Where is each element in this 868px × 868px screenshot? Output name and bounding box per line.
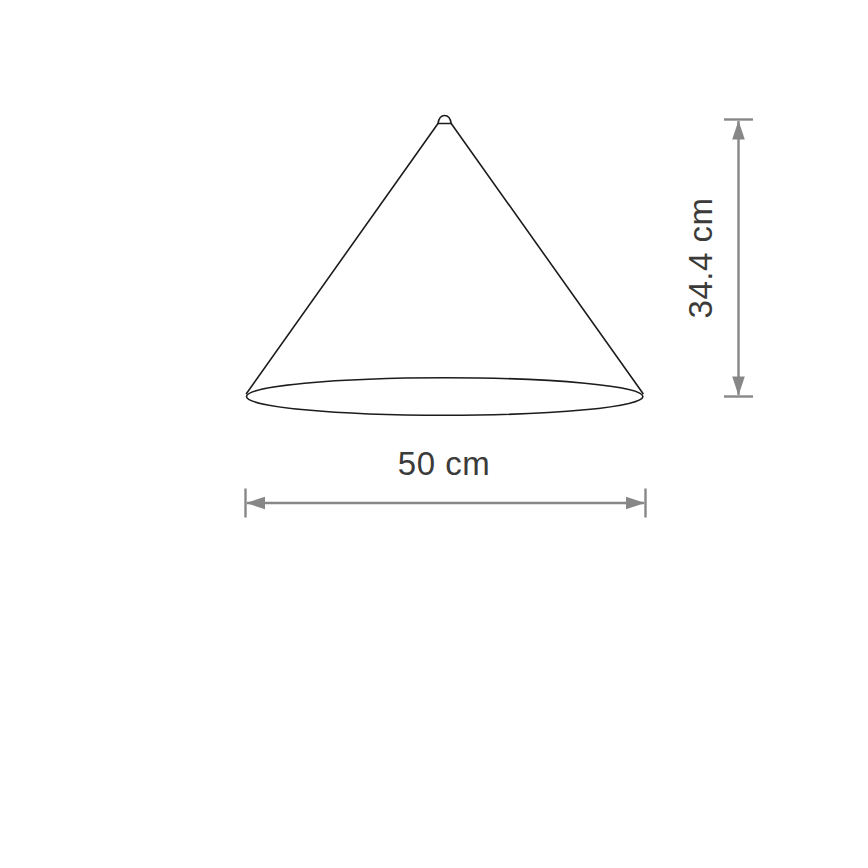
lampshade-dimension-diagram: 34.4 cm 50 cm — [0, 0, 868, 868]
diagram-canvas: 34.4 cm 50 cm — [0, 0, 868, 868]
cone-shade-outline — [247, 115, 644, 415]
width-arrow-left-icon — [246, 497, 265, 510]
width-dimension: 50 cm — [246, 445, 646, 518]
shade-left-edge — [247, 124, 439, 394]
width-arrow-right-icon — [626, 497, 645, 510]
height-dimension-label: 34.4 cm — [682, 198, 719, 319]
height-dimension: 34.4 cm — [682, 120, 754, 397]
width-dimension-label: 50 cm — [398, 445, 490, 482]
shade-top-cap — [438, 115, 451, 123]
shade-bottom-rim — [247, 378, 643, 416]
shade-right-edge — [451, 124, 643, 394]
height-arrow-up-icon — [732, 121, 745, 140]
height-arrow-down-icon — [732, 377, 745, 396]
